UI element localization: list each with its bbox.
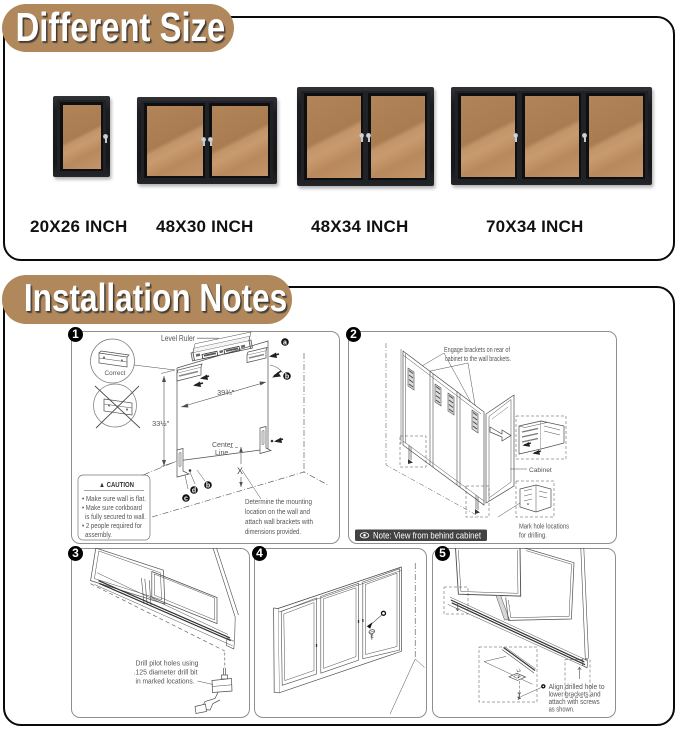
svg-text:b: b	[206, 483, 210, 490]
svg-text:Cabinet: Cabinet	[529, 467, 552, 474]
svg-text:• Make sure corkboard: • Make sure corkboard	[82, 505, 142, 512]
svg-text:attach with screws: attach with screws	[549, 699, 600, 706]
svg-text:a: a	[283, 340, 287, 347]
svg-text:Engage brackets on rear of: Engage brackets on rear of	[444, 347, 510, 354]
svg-text:c: c	[184, 496, 188, 503]
svg-text:Center: Center	[212, 442, 234, 449]
svg-text:33½": 33½"	[152, 419, 170, 428]
svg-text:in marked locations.: in marked locations.	[136, 679, 195, 686]
svg-text:Level Ruler: Level Ruler	[161, 334, 195, 343]
svg-text:dimensions provided.: dimensions provided.	[245, 529, 301, 536]
svg-text:d: d	[192, 488, 196, 495]
svg-text:▲ CAUTION: ▲ CAUTION	[99, 480, 134, 489]
svg-text:location on the wall and: location on the wall and	[245, 509, 310, 516]
svg-text:39¾": 39¾"	[217, 388, 235, 397]
svg-text:assembly.: assembly.	[85, 532, 112, 539]
svg-text:Correct: Correct	[105, 370, 126, 377]
svg-text:as shown.: as shown.	[549, 706, 575, 713]
svg-text:Mark hole locations: Mark hole locations	[519, 524, 569, 531]
svg-text:X: X	[237, 466, 243, 476]
svg-text:Align drilled hole to: Align drilled hole to	[549, 684, 605, 691]
svg-text:.125 diameter drill bit: .125 diameter drill bit	[134, 670, 198, 677]
svg-text:Determine the mounting: Determine the mounting	[245, 499, 312, 506]
svg-text:• Make sure wall is flat.: • Make sure wall is flat.	[82, 496, 146, 503]
svg-text:lower brackets and: lower brackets and	[549, 691, 601, 698]
svg-text:b: b	[285, 374, 289, 381]
svg-text:Note: View from behind cabinet: Note: View from behind cabinet	[373, 531, 481, 541]
svg-text:• 2 people required for: • 2 people required for	[82, 523, 143, 530]
svg-text:is fully secured to wall.: is fully secured to wall.	[85, 514, 146, 521]
svg-text:Line: Line	[215, 450, 228, 457]
svg-text:cabinet to the wall brackets.: cabinet to the wall brackets.	[445, 356, 511, 363]
svg-text:attach wall brackets with: attach wall brackets with	[245, 519, 313, 526]
svg-text:Drill pilot holes using: Drill pilot holes using	[136, 661, 199, 668]
svg-text:for drilling.: for drilling.	[519, 533, 547, 540]
